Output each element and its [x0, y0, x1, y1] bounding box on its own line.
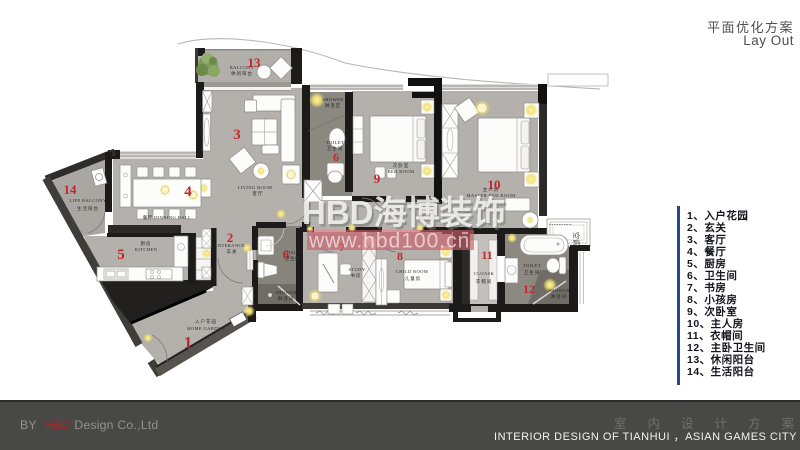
svg-text:STUDY: STUDY — [348, 267, 365, 272]
svg-text:卫生间: 卫生间 — [524, 269, 541, 276]
svg-text:HOME GARDEN: HOME GARDEN — [187, 326, 225, 331]
svg-text:LIFE BALCONY: LIFE BALCONY — [69, 198, 107, 203]
svg-text:14: 14 — [64, 182, 78, 197]
svg-text:厨房: 厨房 — [141, 240, 152, 247]
svg-text:HBD海博装饰: HBD海博装饰 — [302, 194, 506, 231]
svg-text:5: 5 — [117, 247, 125, 263]
svg-text:TOILET: TOILET — [286, 251, 302, 255]
svg-text:餐厅 DINNING HALL: 餐厅 DINNING HALL — [143, 214, 192, 221]
svg-text:休闲阳台: 休闲阳台 — [231, 70, 253, 77]
svg-text:6: 6 — [333, 150, 339, 164]
svg-text:淋浴间: 淋浴间 — [278, 295, 295, 302]
svg-text:BALCONY: BALCONY — [230, 65, 255, 70]
svg-text:1: 1 — [184, 333, 193, 352]
svg-text:ENTERANCE: ENTERANCE — [215, 243, 245, 248]
svg-text:入户花园: 入户花园 — [195, 318, 217, 325]
svg-text:淋浴间: 淋浴间 — [551, 293, 568, 300]
svg-text:TOILET: TOILET — [326, 140, 344, 145]
svg-text:SHOWER: SHOWER — [548, 288, 569, 293]
svg-text:12: 12 — [523, 282, 535, 296]
svg-text:书房: 书房 — [351, 272, 362, 279]
svg-text:衣帽间: 衣帽间 — [476, 278, 493, 285]
svg-text:空调: 空调 — [572, 232, 581, 246]
svg-text:www.hbd100.cn: www.hbd100.cn — [308, 230, 470, 253]
svg-text:次卧室: 次卧室 — [393, 162, 410, 169]
svg-text:客厅: 客厅 — [253, 190, 264, 197]
svg-text:生活阳台: 生活阳台 — [77, 205, 99, 212]
svg-text:CLOASK: CLOASK — [474, 271, 495, 276]
svg-text:SHOWER: SHOWER — [322, 97, 343, 102]
svg-text:儿童房: 儿童房 — [405, 275, 422, 282]
svg-text:卫生间: 卫生间 — [285, 255, 300, 262]
svg-text:淋浴区: 淋浴区 — [325, 102, 342, 109]
svg-text:4: 4 — [184, 184, 192, 200]
svg-text:BED ROOM: BED ROOM — [388, 169, 415, 174]
svg-text:卫生间: 卫生间 — [327, 145, 344, 152]
svg-text:玄关: 玄关 — [227, 248, 238, 255]
svg-text:9: 9 — [374, 171, 381, 186]
svg-text:TOILET: TOILET — [523, 263, 541, 268]
svg-text:CHILD ROOM: CHILD ROOM — [396, 269, 428, 274]
svg-text:KITCHEN: KITCHEN — [135, 247, 158, 252]
svg-text:SHOWER: SHOWER — [275, 290, 296, 295]
svg-text:11: 11 — [481, 248, 492, 262]
svg-text:LIVING ROOM: LIVING ROOM — [238, 185, 273, 190]
svg-text:3: 3 — [233, 127, 241, 143]
svg-text:主人房: 主人房 — [483, 186, 500, 193]
